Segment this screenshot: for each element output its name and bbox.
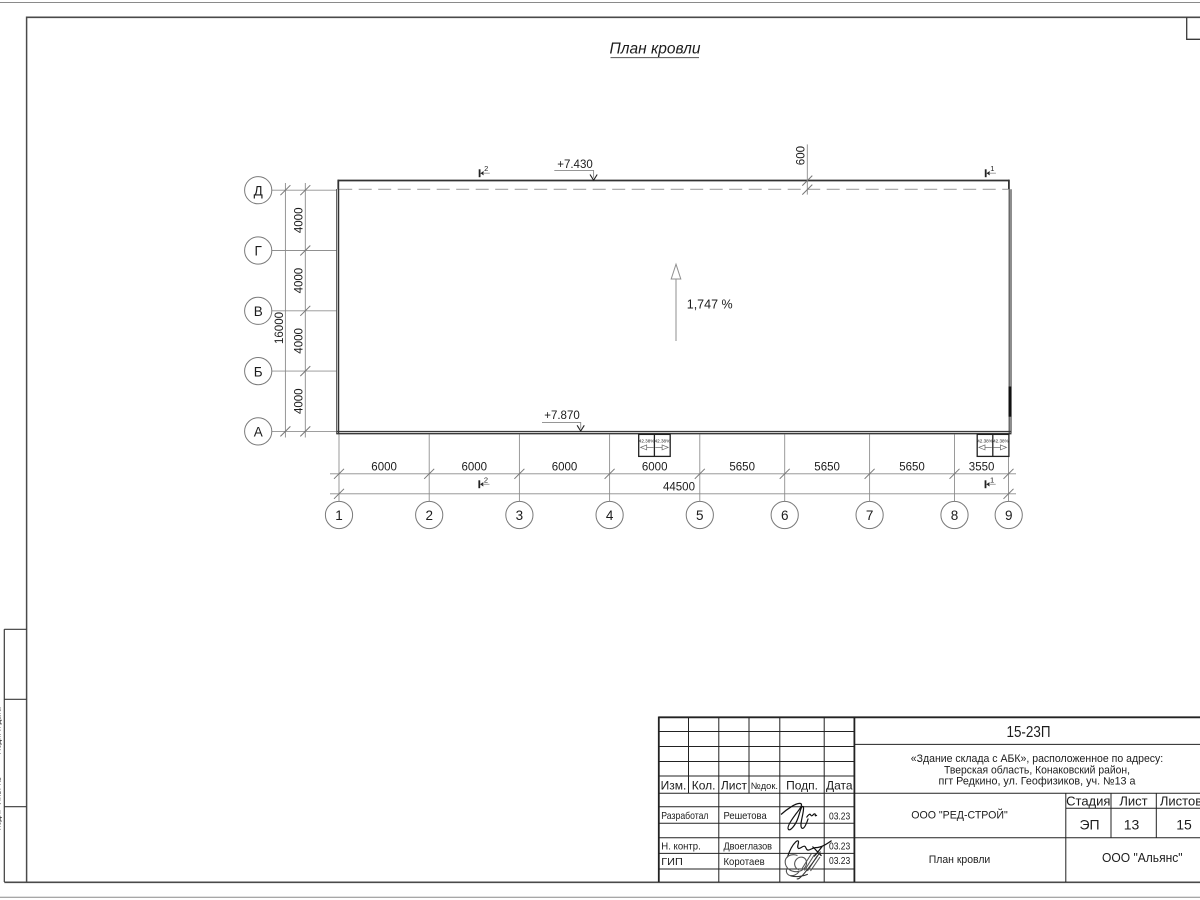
- svg-text:В: В: [254, 304, 263, 319]
- svg-text:Подп.: Подп.: [786, 779, 818, 793]
- svg-text:Изм.: Изм.: [661, 779, 687, 793]
- svg-text:3550: 3550: [969, 462, 995, 474]
- svg-text:6000: 6000: [371, 462, 397, 474]
- svg-text:2: 2: [484, 475, 488, 484]
- svg-text:1: 1: [990, 164, 994, 173]
- svg-text:1: 1: [335, 508, 343, 523]
- svg-text:Д: Д: [254, 183, 263, 198]
- svg-text:4000: 4000: [293, 328, 305, 354]
- svg-text:Двоеглазов: Двоеглазов: [724, 841, 773, 853]
- svg-text:ООО "Альянс": ООО "Альянс": [1102, 850, 1183, 865]
- svg-text:№док.: №док.: [751, 781, 778, 791]
- svg-text:План кровли: План кровли: [610, 41, 701, 58]
- svg-text:5650: 5650: [899, 462, 925, 474]
- svg-text:Лист: Лист: [1119, 793, 1147, 808]
- svg-text:Разработал: Разработал: [661, 810, 708, 822]
- svg-text:5: 5: [696, 508, 704, 523]
- svg-text:подл.: подл.: [0, 810, 2, 830]
- svg-text:+7.870: +7.870: [544, 410, 580, 422]
- svg-text:4000: 4000: [293, 268, 305, 294]
- svg-text:Н. контр.: Н. контр.: [661, 841, 701, 853]
- svg-text:6000: 6000: [462, 462, 488, 474]
- svg-text:Тверская область, Конаковский: Тверская область, Конаковский район,: [944, 764, 1130, 776]
- svg-text:4: 4: [606, 508, 614, 523]
- svg-text:5650: 5650: [729, 462, 755, 474]
- svg-text:03.23: 03.23: [829, 856, 851, 867]
- svg-text:16000: 16000: [274, 312, 286, 344]
- svg-text:ГИП: ГИП: [661, 856, 683, 868]
- svg-text:2: 2: [425, 508, 433, 523]
- svg-text:42.38%: 42.38%: [655, 439, 671, 444]
- svg-text:План кровли: План кровли: [929, 854, 991, 866]
- svg-text:+7.430: +7.430: [557, 159, 593, 171]
- svg-text:7: 7: [866, 508, 874, 523]
- svg-text:6000: 6000: [552, 462, 578, 474]
- svg-text:15-23П: 15-23П: [1007, 724, 1051, 741]
- svg-text:42.38%: 42.38%: [977, 439, 993, 444]
- svg-text:Лист: Лист: [721, 779, 748, 793]
- svg-text:Б: Б: [254, 364, 263, 379]
- svg-text:Решетова: Решетова: [724, 810, 767, 822]
- svg-text:8: 8: [951, 508, 959, 523]
- svg-text:03.23: 03.23: [829, 841, 851, 852]
- svg-text:42.38%: 42.38%: [639, 439, 655, 444]
- svg-text:6000: 6000: [642, 462, 668, 474]
- svg-text:13: 13: [1124, 816, 1140, 832]
- svg-text:ООО "РЕД-СТРОЙ": ООО "РЕД-СТРОЙ": [911, 809, 1008, 822]
- svg-text:5650: 5650: [814, 462, 840, 474]
- svg-text:2: 2: [484, 164, 488, 173]
- svg-text:«Здание склада с АБК», располо: «Здание склада с АБК», расположенное по …: [911, 753, 1164, 765]
- svg-text:пгт Редкино, ул. Геофизиков, у: пгт Редкино, ул. Геофизиков, уч. №13 а: [939, 776, 1136, 788]
- svg-text:03.23: 03.23: [829, 811, 851, 822]
- svg-text:6: 6: [781, 508, 789, 523]
- svg-text:Подп. и дата: Подп. и дата: [0, 707, 2, 755]
- svg-text:15: 15: [1176, 816, 1192, 832]
- svg-text:Кол.: Кол.: [692, 779, 716, 793]
- svg-text:1,747 %: 1,747 %: [687, 298, 733, 312]
- svg-text:Стадия: Стадия: [1066, 793, 1110, 808]
- svg-text:1: 1: [990, 475, 994, 484]
- svg-text:Г: Г: [255, 244, 263, 259]
- svg-text:44500: 44500: [663, 482, 695, 494]
- svg-text:4000: 4000: [293, 388, 305, 414]
- svg-text:Инв. №: Инв. №: [0, 777, 2, 805]
- svg-text:А: А: [254, 425, 263, 440]
- svg-text:600: 600: [795, 146, 807, 165]
- svg-text:Листов: Листов: [1160, 793, 1200, 808]
- svg-text:4000: 4000: [293, 208, 305, 234]
- svg-text:Дата: Дата: [826, 779, 853, 793]
- svg-text:ЭП: ЭП: [1079, 816, 1099, 832]
- svg-text:9: 9: [1005, 508, 1013, 523]
- svg-text:Коротаев: Коротаев: [724, 856, 766, 868]
- svg-text:42.38%: 42.38%: [993, 439, 1009, 444]
- svg-text:3: 3: [516, 508, 524, 523]
